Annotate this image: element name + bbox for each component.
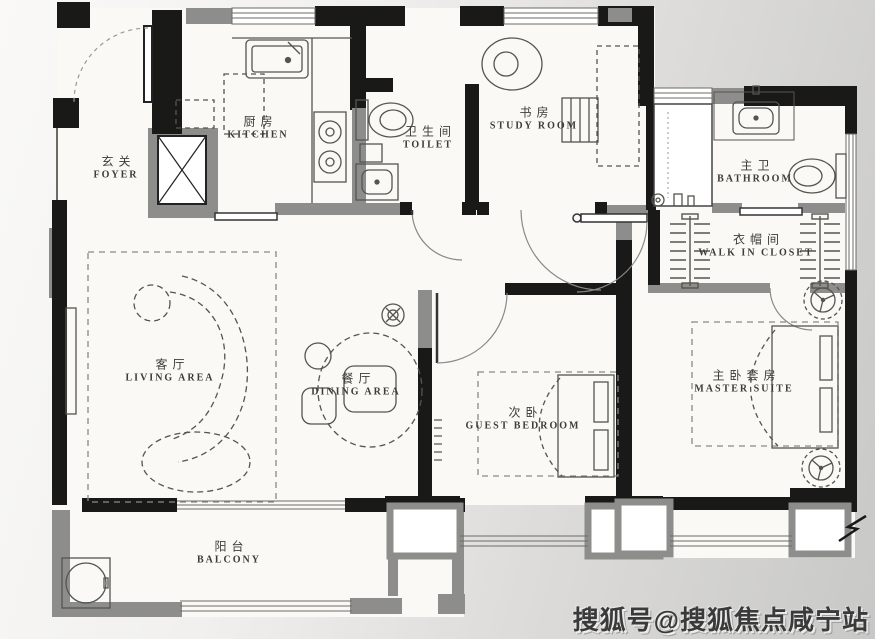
floorplan-page: 玄关 FOYER 厨房 KITCHEN 卫生间 TOILET 书房 STUDY … [0,0,875,639]
bathroom-sliding-door [740,208,802,215]
watermark-text: 搜狐号@搜狐焦点咸宁站 [573,600,869,637]
kitchen-sliding-door [215,213,277,220]
floorplan-canvas [0,0,875,639]
duct-shaft [654,104,712,206]
elevator-icon [158,136,206,204]
entrance-door-leaf [144,26,152,102]
hall-door-leaf [581,214,647,222]
